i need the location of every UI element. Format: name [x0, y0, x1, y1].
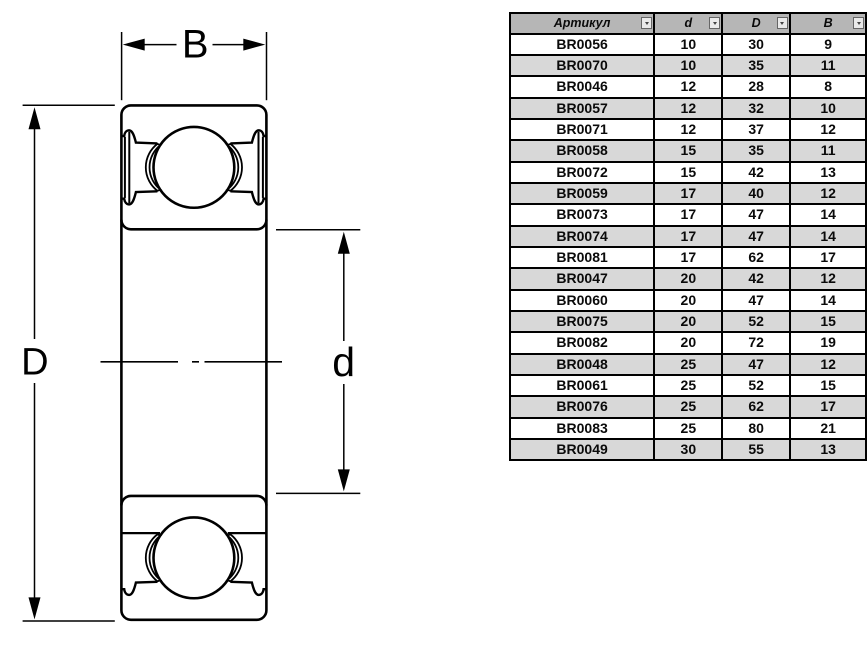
svg-text:d: d — [332, 339, 355, 385]
svg-text:D: D — [21, 342, 48, 384]
svg-text:B: B — [182, 23, 209, 67]
